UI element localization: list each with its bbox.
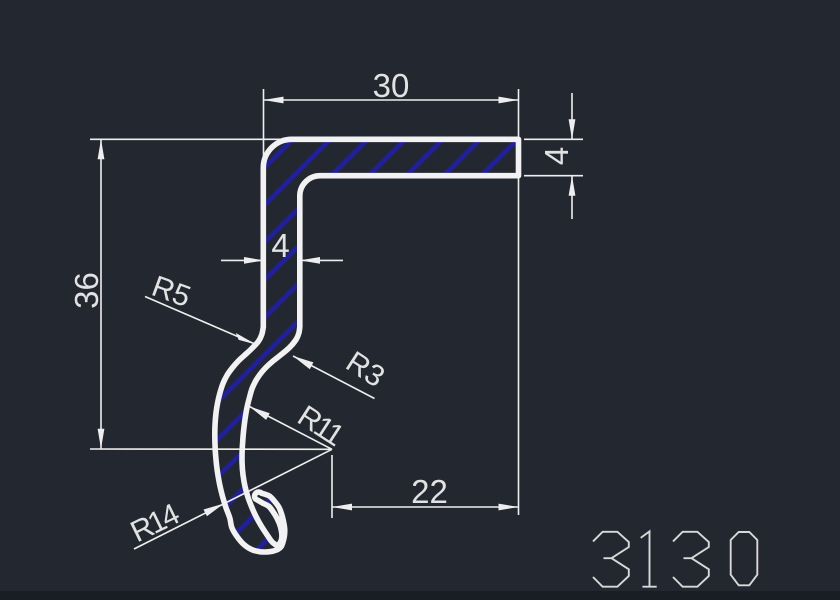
svg-text:36: 36 [68,272,105,309]
svg-text:4: 4 [538,147,575,165]
svg-text:4: 4 [271,227,289,264]
svg-text:22: 22 [411,473,448,510]
svg-text:30: 30 [373,67,410,104]
